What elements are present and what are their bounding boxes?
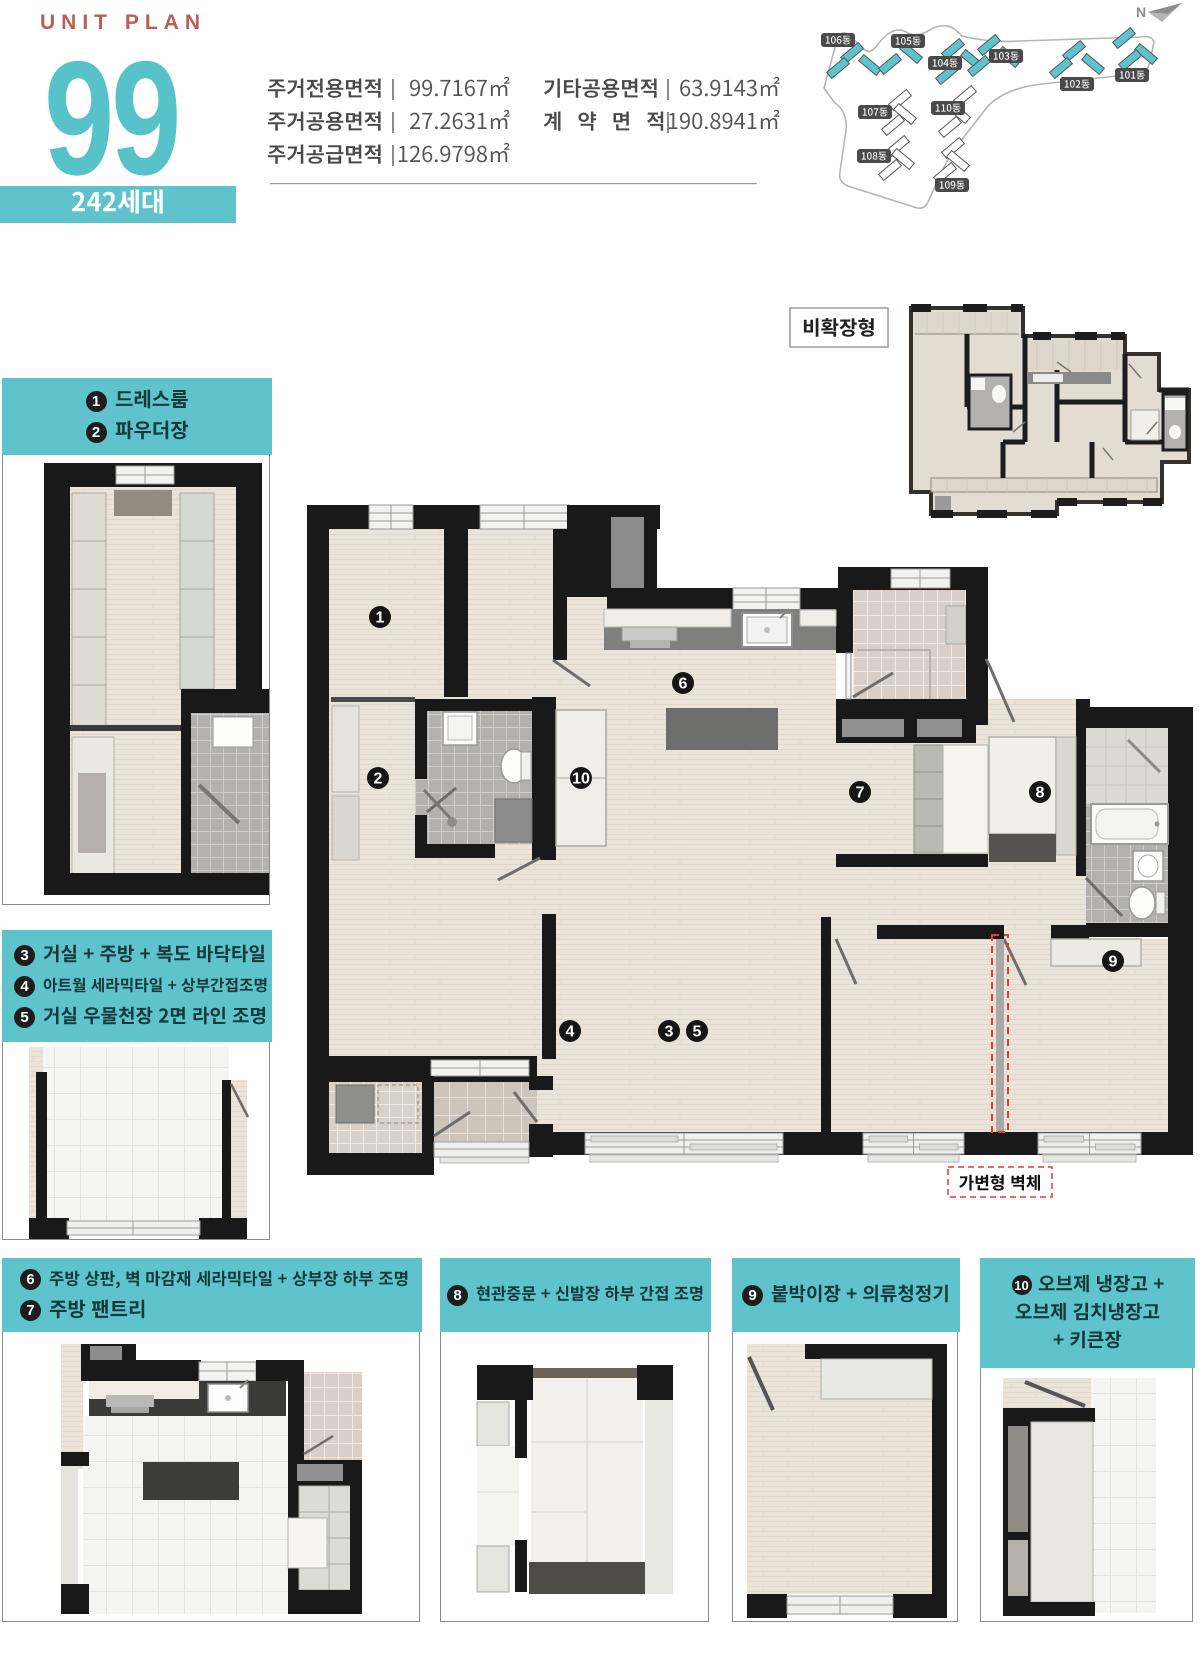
svg-text:7: 7 (856, 785, 865, 802)
svg-text:3: 3 (665, 1024, 674, 1041)
svg-text:10: 10 (572, 771, 590, 788)
svg-text:9: 9 (1109, 954, 1118, 971)
svg-text:2: 2 (374, 771, 383, 788)
svg-text:8: 8 (1036, 785, 1045, 802)
svg-text:5: 5 (693, 1024, 702, 1041)
svg-text:4: 4 (566, 1024, 575, 1041)
svg-text:6: 6 (679, 676, 688, 693)
svg-text:1: 1 (376, 610, 385, 627)
